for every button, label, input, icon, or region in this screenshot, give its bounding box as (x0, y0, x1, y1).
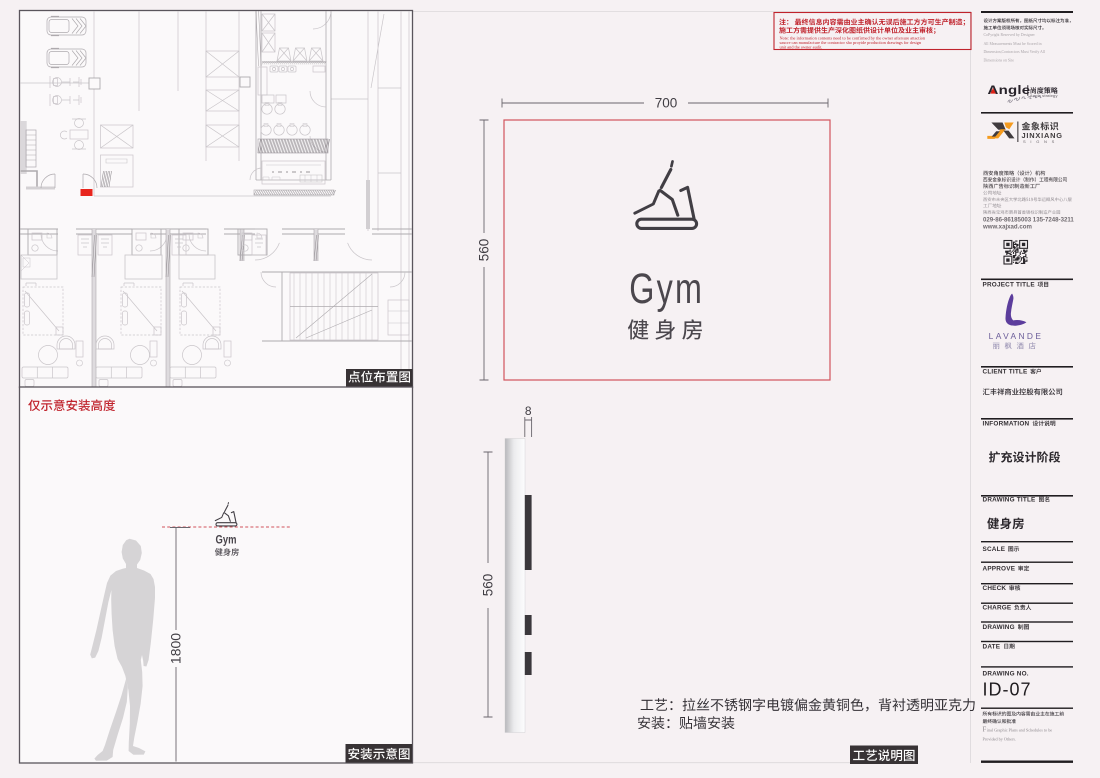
svg-text:S I G N S: S I G N S (1023, 139, 1056, 144)
svg-text:CHECK: CHECK (983, 585, 1007, 592)
svg-text:700: 700 (655, 96, 678, 111)
svg-text:LAVANDE: LAVANDE (989, 331, 1044, 341)
svg-text:APPROVE: APPROVE (983, 566, 1016, 573)
svg-text:unit and the owner audit.: unit and the owner audit. (780, 45, 823, 50)
svg-text:DRAWING TITLE: DRAWING TITLE (983, 497, 1037, 504)
svg-text:www.xajxad.com: www.xajxad.com (982, 223, 1032, 230)
svg-text:DATE: DATE (983, 643, 1001, 650)
svg-text:CHARGE: CHARGE (983, 605, 1012, 612)
svg-text:Gym: Gym (216, 534, 237, 547)
svg-text:Provided by Others.: Provided by Others. (983, 737, 1017, 742)
svg-text:DRAWING: DRAWING (983, 624, 1015, 631)
svg-text:ID-07: ID-07 (983, 680, 1032, 700)
svg-text:INFORMATION: INFORMATION (983, 421, 1030, 428)
svg-text:Dimensions on Site: Dimensions on Site (984, 59, 1015, 63)
svg-text:CLIENT TITLE: CLIENT TITLE (983, 369, 1029, 376)
svg-text:Angle strategy: Angle strategy (1030, 93, 1059, 98)
svg-text:PROJECT TITLE: PROJECT TITLE (983, 282, 1036, 289)
svg-text:SCALE: SCALE (983, 546, 1006, 553)
svg-text:DRAWING NO.: DRAWING NO. (983, 671, 1029, 678)
svg-text:inal Graphic Plans and Schedul: inal Graphic Plans and Schedules to be (987, 728, 1052, 733)
svg-text:All Measurements Must be Score: All Measurements Must be Scored in (984, 42, 1042, 46)
svg-text:560: 560 (477, 239, 492, 262)
svg-text:CoPyright Reserved by Designer: CoPyright Reserved by Designer (984, 33, 1036, 37)
svg-text:560: 560 (481, 574, 496, 597)
svg-text:1800: 1800 (168, 633, 184, 664)
svg-text:Gym: Gym (629, 265, 704, 312)
svg-text:8: 8 (525, 404, 532, 418)
